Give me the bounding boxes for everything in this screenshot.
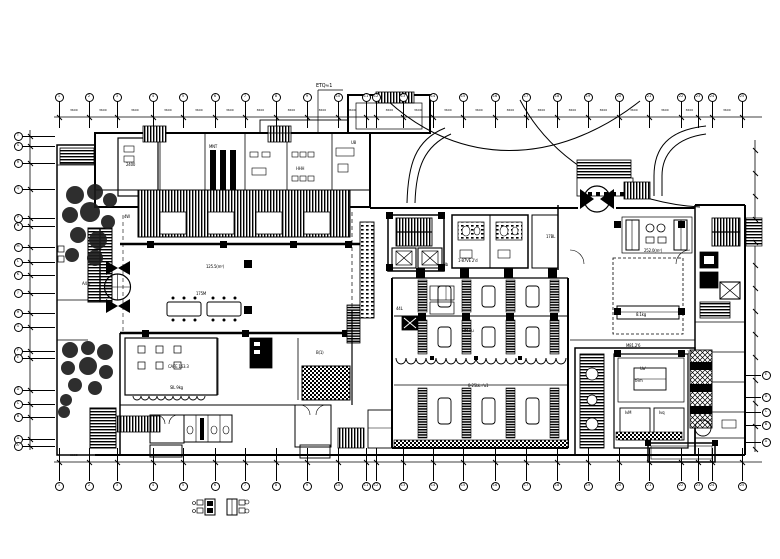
room-label: 125.5(m²) xyxy=(206,264,224,269)
grid-bubble-bottom: 19 xyxy=(584,482,593,491)
grid-stem-left xyxy=(22,189,55,190)
grid-stem-top xyxy=(649,101,650,128)
grid-stem-left xyxy=(22,390,55,391)
grid-stem-top xyxy=(698,101,699,128)
dim-text: 3600 xyxy=(723,108,731,112)
grid-bubble-bottom: 20 xyxy=(615,482,624,491)
kitchen xyxy=(575,348,718,462)
grid-stem-left xyxy=(22,163,55,164)
grid-bubble-top: 5 xyxy=(179,93,188,102)
grid-stem-top xyxy=(588,101,589,128)
grid-bubble-left: T xyxy=(14,132,23,141)
desks xyxy=(250,148,354,181)
grid-stem-left xyxy=(22,351,55,352)
grid-bubble-bottom: 15 xyxy=(459,482,468,491)
grid-bubble-bottom: 24 xyxy=(708,482,717,491)
grid-bubble-bottom: 8 xyxy=(272,482,281,491)
dim-text: 3600 xyxy=(661,453,669,457)
dim-text: 3600 xyxy=(630,453,638,457)
grid-stem-top xyxy=(681,101,682,128)
grid-stem-top xyxy=(183,101,184,128)
grid-bubble-right: A xyxy=(762,438,771,447)
banquet-hall xyxy=(392,268,568,448)
grid-stem-top xyxy=(307,101,308,128)
dim-text: 3600 xyxy=(70,453,78,457)
grid-stem-top xyxy=(276,101,277,128)
room-label: IvM xyxy=(625,410,631,415)
grid-bubble-bottom: 13 xyxy=(399,482,408,491)
dim-text: 3600 xyxy=(226,453,234,457)
room-label: M81.2'6 xyxy=(626,343,640,348)
room-label: Ua' xyxy=(640,366,646,371)
grid-stem-left xyxy=(22,446,55,447)
grid-bubble-top: 4 xyxy=(149,93,158,102)
dim-text: 3600 xyxy=(131,108,139,112)
dim-text: 3600 xyxy=(414,108,422,112)
dim-text: 3600 xyxy=(444,108,452,112)
grid-bubble-top: 7 xyxy=(241,93,250,102)
dim-text: 3600 xyxy=(195,108,203,112)
grid-stem-left xyxy=(22,327,55,328)
dim-text: 3600 xyxy=(686,453,694,457)
grid-bubble-bottom: 5 xyxy=(179,482,188,491)
grid-bubble-bottom: 16 xyxy=(491,482,500,491)
grid-stem-right xyxy=(745,397,761,398)
furniture-legend xyxy=(193,499,250,515)
dim-text: 3600 xyxy=(70,108,78,112)
grid-stem-right xyxy=(745,375,761,376)
grid-bubble-bottom: 25 xyxy=(738,482,747,491)
room-label: 4W xyxy=(124,214,130,219)
grid-bubble-bottom: 3 xyxy=(113,482,122,491)
dim-text: 3600 xyxy=(507,453,515,457)
floor-plan-canvas: 1122334455667788991010111112121313141415… xyxy=(0,0,780,559)
grid-bubble-left: J xyxy=(14,289,23,298)
grid-stem-left xyxy=(22,404,55,405)
grid-bubble-bottom: 10 xyxy=(334,482,343,491)
room-label: CAFE 163.3 xyxy=(168,364,189,369)
room-label: ETQ≈1 xyxy=(316,83,332,89)
grid-bubble-top: 16 xyxy=(491,93,500,102)
dim-text: 3600 xyxy=(475,453,483,457)
room-label: HHH xyxy=(296,166,304,171)
grid-bubble-top: 9 xyxy=(303,93,312,102)
grid-bubble-left: M xyxy=(14,243,23,252)
dim-text: 3600 xyxy=(686,108,694,112)
dim-text: 3600 xyxy=(226,108,234,112)
grid-stem-top xyxy=(376,101,377,128)
dim-text: 3600 xyxy=(319,453,327,457)
grid-bubble-bottom: 21 xyxy=(645,482,654,491)
room-label: 8-25bL r'u1 xyxy=(468,383,488,388)
dim-text: 3600 xyxy=(386,108,394,112)
grid-bubble-top: 10 xyxy=(334,93,343,102)
dim-text: 3600 xyxy=(569,108,577,112)
server-racks xyxy=(210,150,236,194)
grid-bubble-left: Q xyxy=(14,185,23,194)
dim-text: 3600 xyxy=(475,108,483,112)
dim-text: 3600 xyxy=(414,453,422,457)
grid-bubble-bottom: 2 xyxy=(85,482,94,491)
dim-text: 3600 xyxy=(348,453,356,457)
dim-text: 3600 xyxy=(257,108,265,112)
dim-text: 3600 xyxy=(723,453,731,457)
grid-bubble-top: 18 xyxy=(553,93,562,102)
lobby-hall xyxy=(120,260,360,343)
grid-bubble-bottom: 1 xyxy=(55,482,64,491)
grid-bubble-bottom: 7 xyxy=(241,482,250,491)
dim-text: 3600 xyxy=(164,453,172,457)
grid-stem-left xyxy=(22,313,55,314)
room-label: k4d xyxy=(699,388,706,393)
dim-text: 3600 xyxy=(319,108,327,112)
room-label: MNT xyxy=(209,144,217,149)
grid-bubble-top: 11 xyxy=(362,93,371,102)
grid-bubble-bottom: 14 xyxy=(429,482,438,491)
grid-stem-top xyxy=(89,101,90,128)
grid-stem-top xyxy=(59,101,60,128)
grid-bubble-top: 3 xyxy=(113,93,122,102)
grid-stem-top xyxy=(215,101,216,128)
grid-stem-top xyxy=(742,101,743,128)
grid-stem-top xyxy=(366,101,367,128)
grid-stem-left xyxy=(22,136,55,137)
grid-stem-top xyxy=(153,101,154,128)
grid-bubble-top: 24 xyxy=(708,93,717,102)
grid-bubble-left: R xyxy=(14,159,23,168)
room-label: 2400 xyxy=(126,162,135,167)
grid-bubble-left: C xyxy=(14,400,23,409)
grid-bubble-right: B xyxy=(762,421,771,430)
grid-bubble-top: 21 xyxy=(645,93,654,102)
room-label: HM r'u xyxy=(462,328,474,333)
grid-stem-left xyxy=(22,146,55,147)
grid-stem-top xyxy=(495,101,496,128)
room-label: 252.0(m²) xyxy=(644,248,662,253)
grid-bubble-left: K xyxy=(14,271,23,280)
grid-stem-top xyxy=(619,101,620,128)
grid-stem-left xyxy=(22,226,55,227)
grid-stem-top xyxy=(433,101,434,128)
grid-stem-left xyxy=(22,262,55,263)
dim-text: 3600 xyxy=(507,108,515,112)
grid-bubble-top: 25 xyxy=(738,93,747,102)
grid-stem-left xyxy=(22,417,55,418)
grid-stem-top xyxy=(712,101,713,128)
grid-bubble-bottom: 6 xyxy=(211,482,220,491)
room-label: tFim xyxy=(635,378,643,383)
dim-text: 3600 xyxy=(164,108,172,112)
grid-bubble-right: D xyxy=(762,393,771,402)
grid-stem-top xyxy=(557,101,558,128)
grid-bubble-top: 2 xyxy=(85,93,94,102)
dim-text: 3600 xyxy=(99,108,107,112)
grid-stem-right xyxy=(745,442,761,443)
grid-bubble-top: 23 xyxy=(694,93,703,102)
room-label: A4 b xyxy=(82,281,90,286)
dim-text: 3600 xyxy=(195,453,203,457)
dim-text: 3600 xyxy=(569,453,577,457)
room-label: 175M xyxy=(196,291,206,296)
room-label: 1u' xyxy=(687,350,692,355)
grid-bubble-bottom: 4 xyxy=(149,482,158,491)
grid-bubble-top: 22 xyxy=(677,93,686,102)
grid-bubble-top: 12 xyxy=(372,93,381,102)
grid-bubble-left: G xyxy=(14,323,23,332)
grid-bubble-left: L xyxy=(14,258,23,267)
grid-bubble-bottom: 22 xyxy=(677,482,686,491)
grid-stem-left xyxy=(22,275,55,276)
grid-bubble-bottom: 23 xyxy=(694,482,703,491)
grid-bubble-top: 13 xyxy=(399,93,408,102)
grid-bubble-top: 17 xyxy=(522,93,531,102)
grid-bubble-top: 6 xyxy=(211,93,220,102)
dim-text: 3600 xyxy=(600,453,608,457)
grid-bubble-left: H xyxy=(14,309,23,318)
grid-bubble-top: 20 xyxy=(615,93,624,102)
dimension-lines xyxy=(30,117,762,462)
grid-stem-left xyxy=(22,439,55,440)
grid-bubble-bottom: 18 xyxy=(553,482,562,491)
grid-bubble-top: 8 xyxy=(272,93,281,102)
grid-bubble-bottom: 12 xyxy=(372,482,381,491)
room-label: Hb xyxy=(443,262,448,267)
dim-text: 3600 xyxy=(99,453,107,457)
grid-bubble-bottom: 9 xyxy=(303,482,312,491)
dim-text: 3600 xyxy=(131,453,139,457)
grid-stem-top xyxy=(463,101,464,128)
room-label: 1-87VE 2'd xyxy=(458,258,477,263)
dim-text: 3600 xyxy=(538,108,546,112)
grid-stem-top xyxy=(526,101,527,128)
dim-text: 3600 xyxy=(444,453,452,457)
dim-text: 3600 xyxy=(386,453,394,457)
grid-bubble-left: N xyxy=(14,222,23,231)
grid-bubble-left: B xyxy=(14,413,23,422)
grid-bubble-right: C xyxy=(762,408,771,417)
grid-bubble-left: A' xyxy=(14,442,23,451)
grid-stem-left xyxy=(22,218,55,219)
dim-text: 3600 xyxy=(661,108,669,112)
grid-bubble-top: 19 xyxy=(584,93,593,102)
grid-stem-top xyxy=(245,101,246,128)
grid-bubble-bottom: 11 xyxy=(362,482,371,491)
room-label: SIL 9kg xyxy=(170,385,183,390)
grid-stem-top xyxy=(117,101,118,128)
room-label: 8.1kg xyxy=(636,312,646,317)
skylight-louver-band xyxy=(120,190,360,248)
dim-text: 3600 xyxy=(288,108,296,112)
grid-stem-top xyxy=(403,101,404,128)
grid-bubble-left: S xyxy=(14,142,23,151)
dim-text: 3600 xyxy=(538,453,546,457)
grid-bubble-right: E xyxy=(762,371,771,380)
room-label: Ivq xyxy=(659,410,664,415)
dim-text: 3600 xyxy=(600,108,608,112)
grid-stem-left xyxy=(22,293,55,294)
grid-stem-right xyxy=(745,412,761,413)
grid-bubble-left: E xyxy=(14,354,23,363)
grid-bubble-left: D xyxy=(14,386,23,395)
grid-stem-left xyxy=(22,247,55,248)
room-label: U8 xyxy=(351,140,356,145)
grid-bubble-top: 15 xyxy=(459,93,468,102)
grid-bubble-top: 14 xyxy=(429,93,438,102)
room-label: 44L xyxy=(396,306,403,311)
dim-text: 3600 xyxy=(348,108,356,112)
room-label: B(1) xyxy=(316,350,323,355)
dim-text: 3600 xyxy=(288,453,296,457)
grid-bubble-top: 1 xyxy=(55,93,64,102)
grid-bubble-bottom: 17 xyxy=(522,482,531,491)
grid-stem-left xyxy=(22,358,55,359)
dim-text: 3600 xyxy=(257,453,265,457)
grid-stem-top xyxy=(338,101,339,128)
room-label: 17BL xyxy=(546,234,555,239)
dim-text: 3600 xyxy=(630,108,638,112)
